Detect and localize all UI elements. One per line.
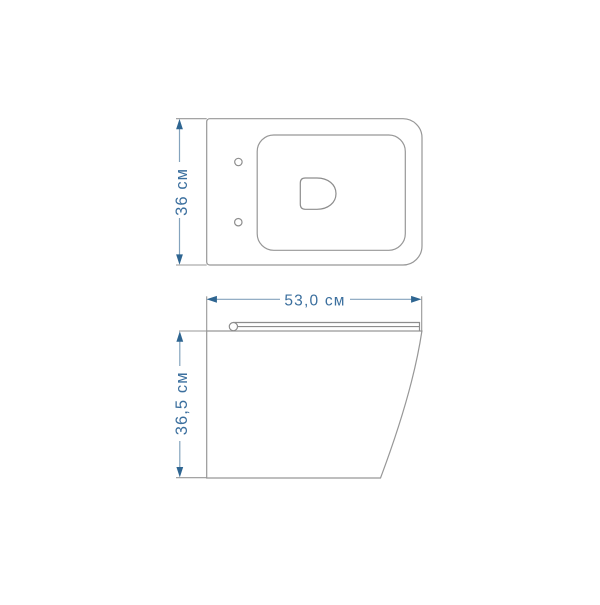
svg-text:36 см: 36 см — [173, 168, 191, 216]
svg-text:36,5 см: 36,5 см — [173, 371, 191, 435]
svg-text:53,0 см: 53,0 см — [284, 293, 345, 310]
